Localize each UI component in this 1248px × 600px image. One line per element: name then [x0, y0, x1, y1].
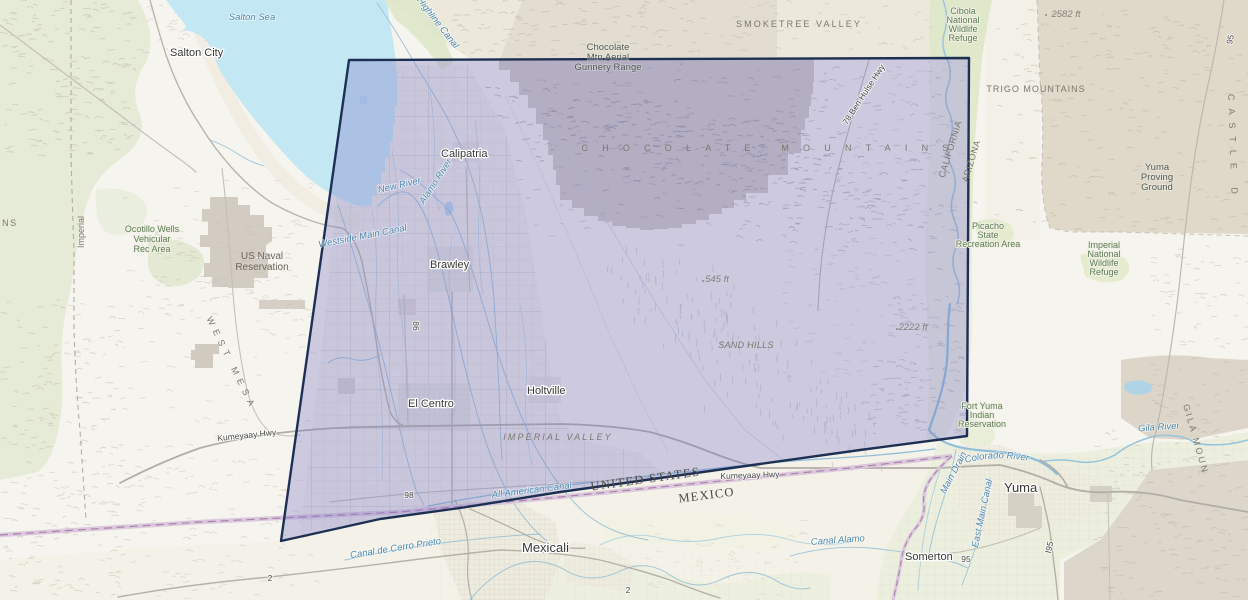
svg-text:Recreation Area: Recreation Area — [956, 239, 1021, 249]
svg-text:Salton Sea: Salton Sea — [229, 12, 275, 23]
svg-text:TAINS: TAINS — [0, 218, 18, 228]
svg-text:95: 95 — [961, 554, 971, 564]
svg-text:98: 98 — [404, 490, 414, 500]
svg-text:Reservation: Reservation — [235, 262, 288, 273]
svg-text:CHOCOLATE MOUNTAINS: CHOCOLATE MOUNTAINS — [582, 143, 963, 153]
svg-text:Refuge: Refuge — [1089, 267, 1118, 277]
svg-text:SAND HILLS: SAND HILLS — [718, 340, 774, 350]
svg-text:El Centro: El Centro — [408, 398, 454, 410]
svg-text:Brawley: Brawley — [430, 259, 470, 271]
svg-text:Calipatria: Calipatria — [441, 148, 488, 160]
svg-text:2582 ft: 2582 ft — [1050, 9, 1080, 20]
svg-text:Gunnery Range: Gunnery Range — [574, 62, 641, 73]
svg-text:SMOKETREE VALLEY: SMOKETREE VALLEY — [736, 19, 862, 29]
svg-text:Kumeyaay Hwy: Kumeyaay Hwy — [720, 469, 780, 481]
svg-text:545 ft: 545 ft — [705, 274, 729, 285]
svg-text:Mexicali: Mexicali — [522, 540, 569, 555]
svg-text:Ocotillo Wells: Ocotillo Wells — [125, 224, 180, 234]
svg-text:Salton City: Salton City — [170, 47, 224, 59]
svg-text:Rec Area: Rec Area — [133, 244, 170, 254]
svg-text:2: 2 — [626, 585, 631, 595]
svg-text:Reservation: Reservation — [958, 419, 1006, 429]
svg-text:TRIGO MOUNTAINS: TRIGO MOUNTAINS — [986, 84, 1085, 94]
svg-text:2222 ft: 2222 ft — [897, 322, 927, 333]
svg-text:Somerton: Somerton — [905, 551, 953, 563]
svg-text:IMPERIAL VALLEY: IMPERIAL VALLEY — [503, 432, 612, 442]
svg-text:Refuge: Refuge — [948, 33, 977, 43]
svg-text:Imperial: Imperial — [76, 216, 86, 248]
svg-text:Holtville: Holtville — [527, 385, 566, 397]
svg-text:Ground: Ground — [1141, 182, 1173, 193]
svg-text:2: 2 — [268, 573, 273, 583]
svg-text:Vehicular: Vehicular — [133, 234, 170, 244]
svg-text:86: 86 — [411, 321, 421, 331]
svg-text:US Naval: US Naval — [241, 251, 283, 262]
svg-text:Yuma: Yuma — [1004, 480, 1038, 495]
